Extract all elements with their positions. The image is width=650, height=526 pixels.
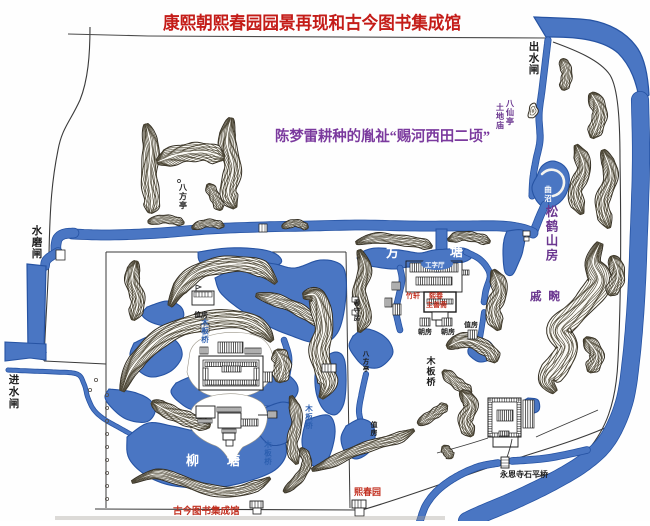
- svg-text:鹤: 鹤: [546, 219, 559, 234]
- svg-text:朝房: 朝房: [441, 327, 455, 336]
- svg-text:土: 土: [496, 102, 504, 112]
- svg-text:松: 松: [546, 204, 559, 219]
- svg-text:桥: 桥: [426, 376, 436, 387]
- svg-text:地: 地: [496, 111, 505, 121]
- svg-text:板: 板: [426, 366, 436, 377]
- svg-text:熙春: 熙春: [429, 291, 444, 300]
- svg-text:曲: 曲: [544, 184, 552, 194]
- svg-text:山: 山: [546, 233, 559, 248]
- svg-text:柳: 柳: [186, 453, 199, 468]
- svg-text:永恩寺石平桥: 永恩寺石平桥: [499, 469, 549, 479]
- svg-text:八: 八: [505, 99, 515, 108]
- svg-text:桥: 桥: [201, 334, 209, 344]
- svg-text:水: 水: [31, 224, 43, 237]
- svg-text:木: 木: [263, 439, 272, 449]
- svg-text:朝房: 朝房: [418, 327, 432, 336]
- svg-text:亭: 亭: [506, 116, 514, 126]
- svg-text:陈梦雷耕种的胤祉“赐河西田二顷”: 陈梦雷耕种的胤祉“赐河西田二顷”: [275, 127, 490, 145]
- svg-text:主善斋: 主善斋: [426, 300, 448, 309]
- svg-text:房: 房: [546, 248, 559, 263]
- svg-text:值: 值: [371, 420, 378, 429]
- svg-text:守: 守: [354, 306, 361, 315]
- svg-text:方: 方: [386, 245, 399, 260]
- svg-text:康熙朝熙春园园景再现和古今图书集成馆: 康熙朝熙春园园景再现和古今图书集成馆: [163, 13, 461, 33]
- svg-text:板: 板: [305, 412, 313, 422]
- svg-text:八: 八: [178, 183, 188, 192]
- svg-text:塘: 塘: [227, 453, 240, 468]
- svg-text:塘: 塘: [450, 244, 463, 259]
- svg-text:水: 水: [8, 385, 20, 398]
- svg-text:沼: 沼: [544, 193, 552, 203]
- svg-text:方: 方: [179, 191, 187, 201]
- svg-text:闸: 闸: [529, 63, 540, 76]
- svg-text:闸: 闸: [9, 397, 20, 410]
- svg-text:亭: 亭: [179, 200, 187, 210]
- svg-text:竹轩: 竹轩: [405, 291, 420, 300]
- svg-text:庙: 庙: [496, 120, 504, 130]
- svg-text:房: 房: [371, 428, 378, 437]
- svg-text:闸: 闸: [32, 247, 43, 260]
- svg-text:桥: 桥: [264, 456, 272, 466]
- svg-text:工字厅: 工字厅: [425, 260, 445, 269]
- svg-text:房: 房: [354, 313, 361, 322]
- svg-text:磨: 磨: [31, 236, 43, 249]
- svg-text:值房: 值房: [464, 320, 478, 329]
- svg-text:木: 木: [304, 403, 313, 413]
- svg-text:戚 畹: 戚 畹: [530, 289, 562, 303]
- svg-text:进: 进: [9, 373, 20, 386]
- svg-text:仙: 仙: [506, 107, 514, 117]
- svg-text:木: 木: [425, 355, 436, 366]
- svg-text:桥: 桥: [305, 420, 313, 430]
- svg-text:板: 板: [264, 448, 272, 458]
- svg-text:八: 八: [362, 350, 370, 358]
- svg-text:水: 水: [528, 52, 540, 65]
- svg-text:出: 出: [529, 40, 540, 53]
- svg-text:看: 看: [354, 298, 361, 307]
- svg-text:熙春园: 熙春园: [354, 486, 381, 497]
- svg-text:亭: 亭: [363, 364, 370, 373]
- svg-text:古今图书集成馆: 古今图书集成馆: [173, 505, 240, 517]
- svg-text:方: 方: [363, 357, 370, 366]
- svg-text:板: 板: [201, 326, 209, 336]
- svg-text:木: 木: [200, 317, 209, 327]
